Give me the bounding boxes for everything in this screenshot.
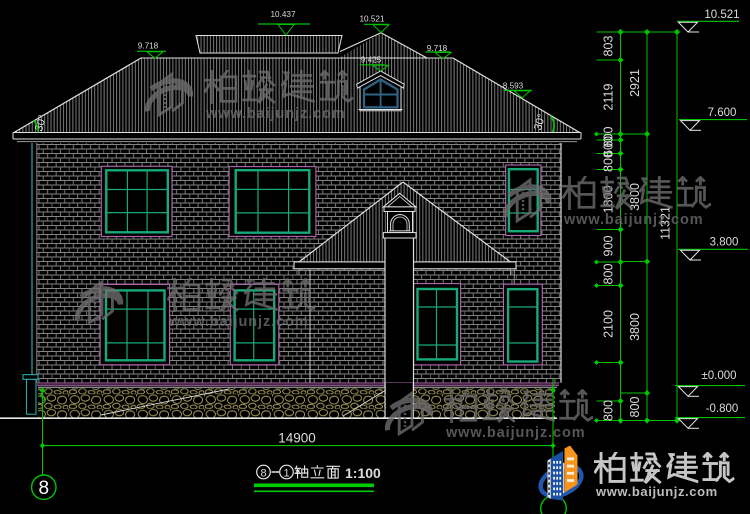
svg-text:www.baijunjz.com: www.baijunjz.com bbox=[563, 212, 704, 228]
svg-text:1: 1 bbox=[283, 468, 289, 480]
svg-text:±0.000: ±0.000 bbox=[701, 370, 736, 382]
svg-text:800: 800 bbox=[602, 151, 616, 172]
svg-text:2119: 2119 bbox=[602, 84, 616, 111]
svg-text:800: 800 bbox=[602, 400, 616, 421]
svg-text:8: 8 bbox=[39, 478, 50, 499]
svg-text:8: 8 bbox=[260, 468, 266, 480]
svg-text:600: 600 bbox=[602, 127, 616, 148]
svg-text:14900: 14900 bbox=[278, 431, 316, 446]
svg-text:803: 803 bbox=[602, 36, 616, 57]
svg-text:2100: 2100 bbox=[602, 310, 616, 338]
svg-text:www.baijunjz.com: www.baijunjz.com bbox=[168, 314, 309, 330]
svg-text:7.600: 7.600 bbox=[708, 107, 737, 119]
svg-text:3.800: 3.800 bbox=[710, 237, 739, 249]
svg-text:www.baijunjz.com: www.baijunjz.com bbox=[595, 484, 718, 499]
svg-text:900: 900 bbox=[602, 236, 616, 257]
svg-text:10.521: 10.521 bbox=[359, 15, 384, 24]
svg-text:9.425: 9.425 bbox=[361, 56, 382, 65]
svg-text:www.baijunjz.com: www.baijunjz.com bbox=[205, 106, 346, 122]
svg-text:8.593: 8.593 bbox=[503, 82, 524, 91]
svg-text:2921: 2921 bbox=[628, 69, 642, 97]
svg-text:800: 800 bbox=[602, 264, 616, 285]
svg-text:10.437: 10.437 bbox=[270, 10, 295, 19]
svg-text:9.718: 9.718 bbox=[138, 42, 159, 51]
svg-text:-0.800: -0.800 bbox=[706, 403, 739, 415]
svg-text:800: 800 bbox=[628, 397, 642, 418]
svg-text:3800: 3800 bbox=[628, 313, 642, 341]
svg-text:10.521: 10.521 bbox=[704, 9, 739, 21]
svg-text:www.baijunjz.com: www.baijunjz.com bbox=[445, 425, 586, 441]
svg-text:1:100: 1:100 bbox=[345, 465, 381, 481]
